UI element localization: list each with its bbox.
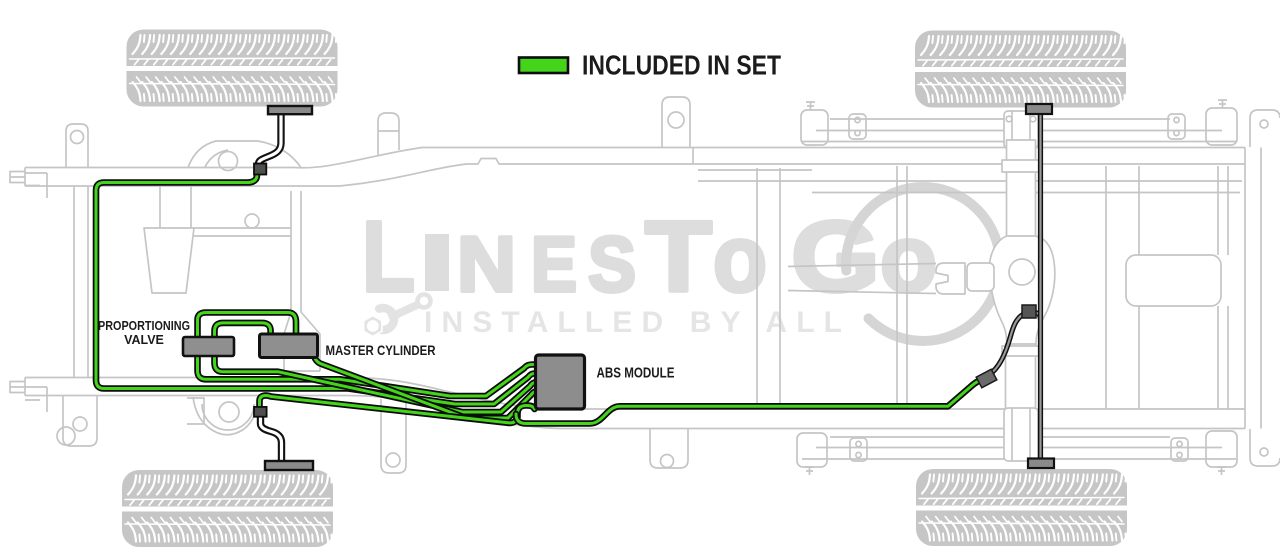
svg-text:ABS MODULE: ABS MODULE	[597, 365, 675, 382]
svg-text:N: N	[457, 220, 516, 308]
svg-text:S: S	[588, 220, 636, 308]
svg-text:VALVE: VALVE	[124, 333, 164, 347]
svg-text:T: T	[645, 201, 712, 313]
svg-text:E: E	[531, 220, 577, 308]
svg-text:o: o	[880, 206, 937, 312]
svg-text:PROPORTIONING: PROPORTIONING	[98, 319, 190, 333]
svg-text:o: o	[713, 206, 767, 312]
svg-text:INCLUDED IN SET: INCLUDED IN SET	[582, 50, 781, 81]
svg-text:L: L	[362, 201, 415, 313]
svg-text:MASTER CYLINDER: MASTER CYLINDER	[326, 342, 436, 358]
